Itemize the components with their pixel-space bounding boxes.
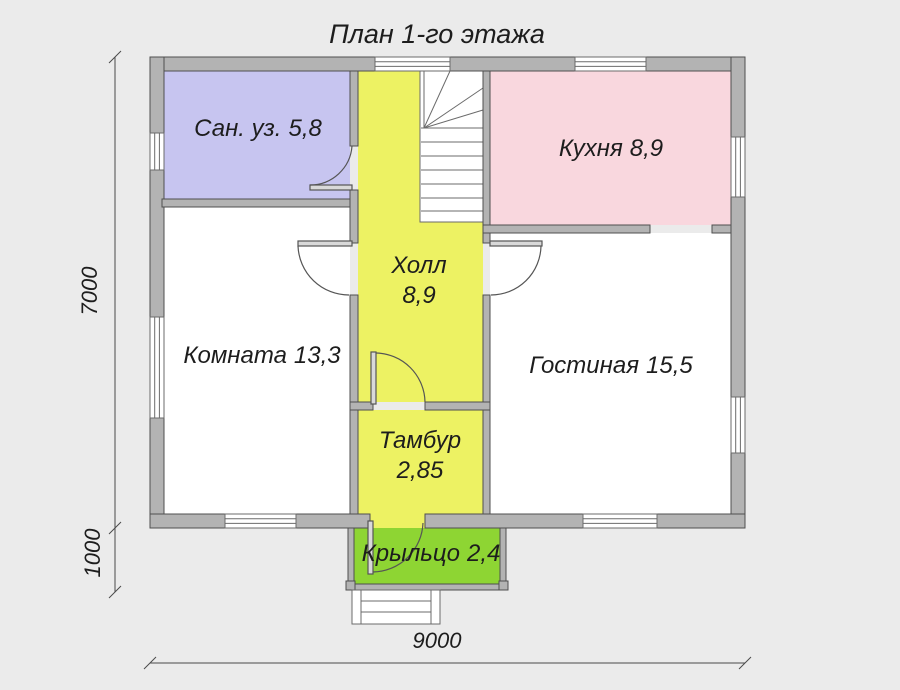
wall-hall-left-upper [350,71,358,146]
wall-outer-left [150,57,164,528]
window-icon [150,133,164,170]
label-hall-area: 8,9 [402,282,435,309]
tambour-doorway-floor [370,514,425,528]
label-bedroom: Комната13,3 [183,342,341,369]
label-bathroom: Сан. уз.5,8 [194,115,322,142]
wall-tambour-top-left [350,402,373,410]
window-icon [375,57,450,71]
dimension-left [109,51,121,598]
porch-corner-post-right [499,581,508,590]
dimension-label-porch: 1000 [80,528,105,578]
wall-hall-right-upper [483,71,490,243]
wall-tambour-top-right [425,402,490,410]
label-tambour-name: Тамбур [379,427,461,454]
window-icon [583,514,657,528]
stair-flight-area [420,71,483,222]
page-title: План 1-го этажа [329,19,545,49]
staircase [420,71,483,222]
wall-bathroom-bottom [162,199,350,207]
window-icon [731,397,745,453]
label-tambour-area: 2,85 [396,457,444,484]
porch-corner-post-left [346,581,355,590]
floor-plan-page: План 1-го этажа Сан. уз.5,8 Кухня8,9 Хол… [0,0,900,690]
label-porch: Крыльцо2,4 [362,540,501,567]
label-living: Гостиная15,5 [529,352,693,379]
dimension-label-width: 9000 [413,628,463,653]
wall-kitchen-bottom-stub [712,225,731,233]
label-kitchen: Кухня8,9 [559,135,663,162]
porch-steps [352,590,440,624]
wall-kitchen-bottom [483,225,650,233]
window-icon [225,514,296,528]
window-icon [731,137,745,197]
wall-hall-left-mid [350,190,358,243]
label-hall-name: Холл [390,252,447,279]
dimension-bottom [144,657,751,669]
floor-plan-drawing: План 1-го этажа Сан. уз.5,8 Кухня8,9 Хол… [0,0,900,690]
window-icon [150,317,164,418]
wall-outer-right [731,57,745,528]
dimension-label-height: 7000 [77,266,102,316]
window-icon [575,57,646,71]
wall-porch-bottom [348,584,506,590]
